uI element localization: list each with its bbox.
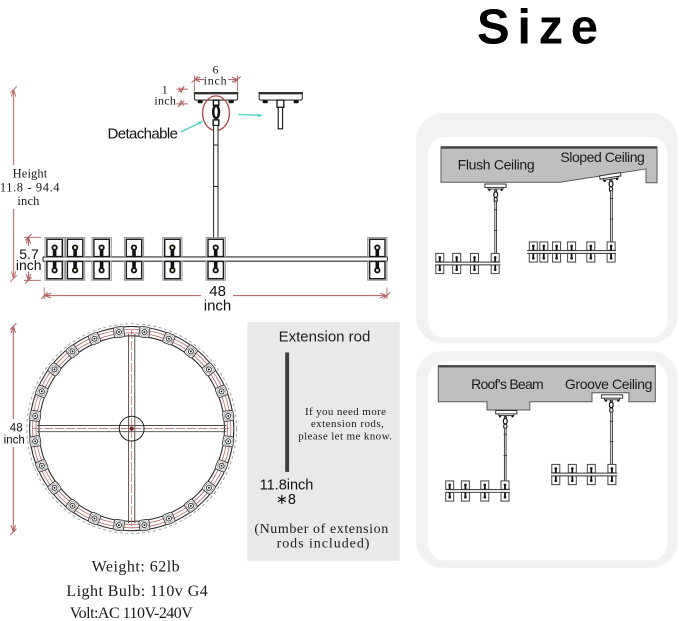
svg-text:Volt:AC 110V-240V: Volt:AC 110V-240V	[70, 605, 194, 621]
svg-text:Groove Ceiling: Groove Ceiling	[565, 376, 652, 392]
svg-text:Extension rod: Extension rod	[279, 329, 371, 346]
svg-text:Height: Height	[13, 166, 48, 180]
svg-text:inch: inch	[16, 257, 42, 273]
svg-text:inch: inch	[17, 194, 40, 208]
svg-text:inch: inch	[154, 94, 176, 108]
svg-text:extension rods,: extension rods,	[311, 418, 385, 430]
svg-text:Light Bulb: 110v G4: Light Bulb: 110v G4	[66, 583, 208, 600]
svg-text:inch: inch	[4, 434, 25, 446]
svg-text:48: 48	[10, 422, 23, 434]
svg-text:∗8: ∗8	[276, 492, 296, 508]
svg-text:Flush Ceiling: Flush Ceiling	[458, 157, 535, 173]
svg-text:If you need more: If you need more	[305, 406, 386, 418]
svg-text:11.8inch: 11.8inch	[260, 477, 314, 493]
svg-text:please let me know.: please let me know.	[298, 430, 392, 442]
svg-text:11.8 - 94.4: 11.8 - 94.4	[0, 180, 60, 194]
svg-text:Sloped Ceiling: Sloped Ceiling	[560, 149, 644, 165]
svg-text:rods included): rods included)	[277, 537, 371, 552]
svg-text:inch: inch	[204, 298, 232, 315]
svg-text:(Number of extension: (Number of extension	[254, 522, 388, 537]
svg-text:inch: inch	[204, 73, 228, 87]
svg-text:Weight: 62lb: Weight: 62lb	[92, 558, 181, 575]
svg-text:Roof’s Beam: Roof’s Beam	[471, 376, 543, 392]
svg-text:Detachable: Detachable	[108, 126, 178, 143]
